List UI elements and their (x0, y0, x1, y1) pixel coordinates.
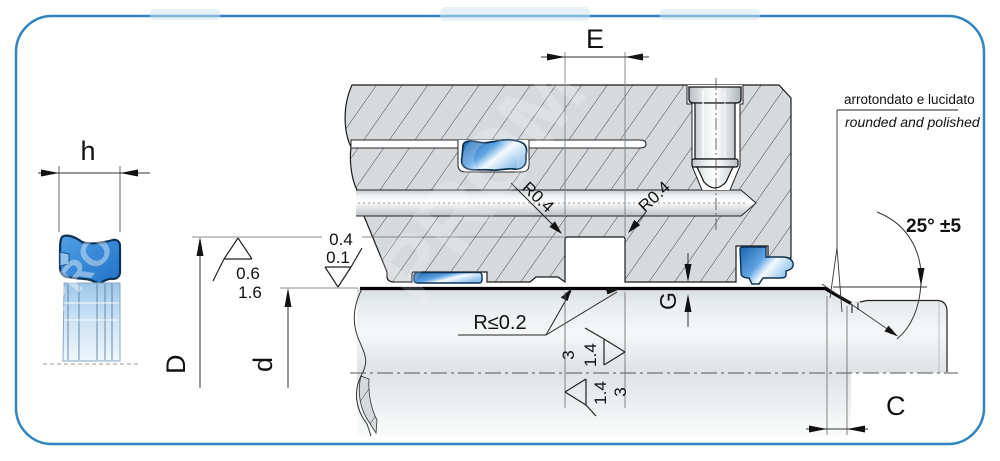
flank-right-inner: 1.4 (581, 343, 600, 367)
E-label: E (586, 24, 604, 54)
technical-drawing-page: h E D d 0.6 (0, 0, 1000, 461)
G-label: G (655, 292, 681, 310)
d-roughness-bottom: 0.1 (326, 248, 350, 267)
note-english: rounded and polished (845, 114, 981, 130)
C-label: C (886, 391, 906, 421)
seal-installation-diagram: h E D d 0.6 (0, 0, 1000, 461)
h-label: h (80, 136, 95, 166)
svg-text:R≤0.2: R≤0.2 (473, 312, 526, 334)
plug-body (695, 103, 735, 159)
D-roughness-bottom: 1.6 (238, 283, 262, 302)
flank-left-outer: 3 (611, 387, 630, 396)
d-label: d (248, 357, 278, 372)
note-italian: arrotondato e lucidato (844, 92, 975, 107)
angle-label: 25° ±5 (906, 216, 961, 237)
d-roughness-top: 0.4 (329, 230, 353, 249)
D-roughness-top: 0.6 (236, 264, 260, 283)
D-label: D (161, 355, 191, 375)
plug-flange (692, 159, 738, 167)
plug-head (689, 87, 741, 103)
flank-right-outer: 3 (559, 350, 578, 359)
flank-left-inner: 1.4 (591, 381, 610, 405)
